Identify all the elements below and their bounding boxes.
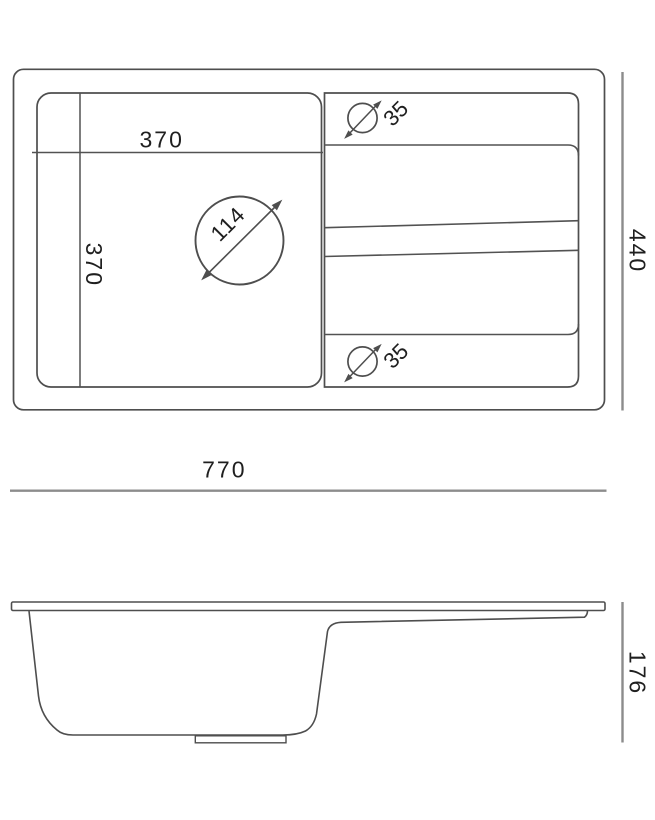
svg-text:370: 370 bbox=[81, 243, 107, 287]
svg-text:114: 114 bbox=[206, 202, 251, 247]
svg-text:770: 770 bbox=[202, 457, 246, 483]
svg-text:35: 35 bbox=[378, 96, 413, 131]
svg-text:440: 440 bbox=[625, 229, 651, 273]
svg-text:35: 35 bbox=[378, 338, 413, 373]
svg-text:370: 370 bbox=[140, 127, 184, 153]
svg-text:176: 176 bbox=[625, 651, 651, 695]
